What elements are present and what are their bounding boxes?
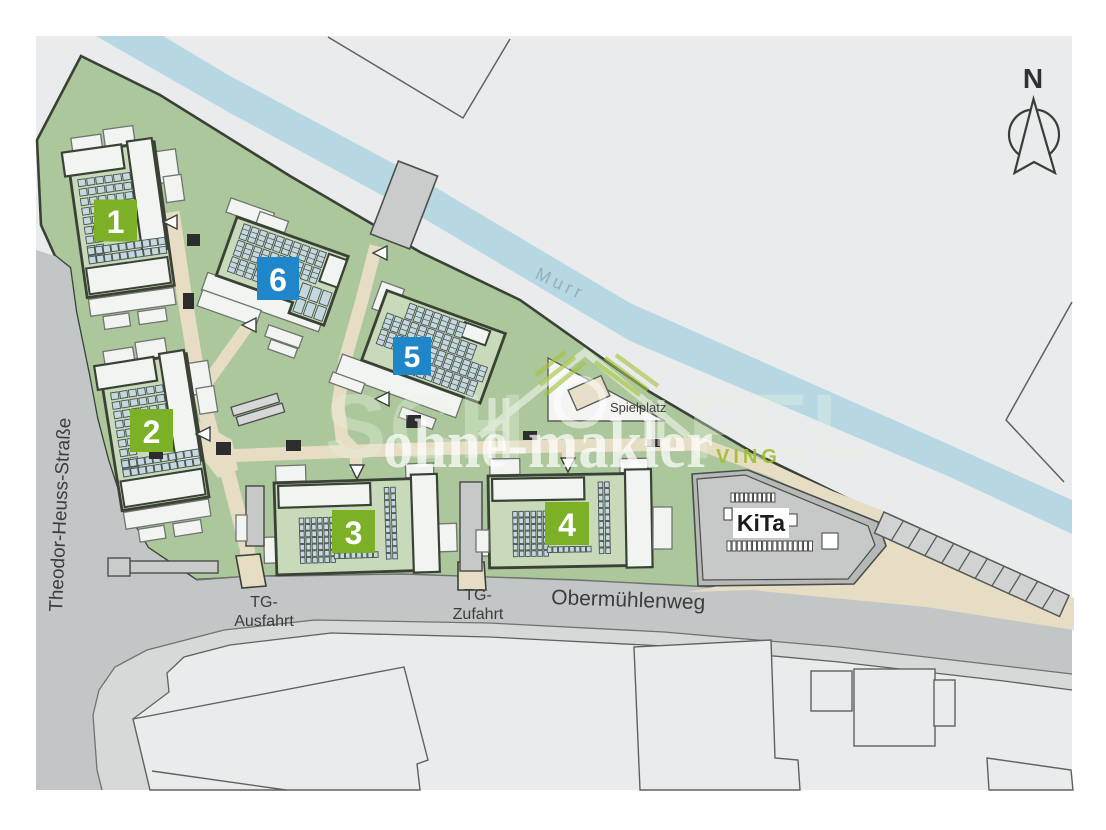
- svg-text:3: 3: [345, 515, 363, 551]
- svg-text:6: 6: [269, 262, 287, 298]
- svg-text:KiTa: KiTa: [737, 510, 785, 536]
- svg-text:TG-: TG-: [250, 594, 278, 611]
- svg-text:N: N: [1023, 63, 1043, 94]
- svg-text:ohne-makler: ohne-makler: [383, 406, 713, 483]
- svg-text:2: 2: [143, 414, 161, 450]
- svg-text:Ausfahrt: Ausfahrt: [234, 613, 294, 630]
- svg-text:1: 1: [107, 204, 125, 240]
- svg-text:5: 5: [404, 341, 421, 374]
- svg-text:Spielplatz: Spielplatz: [610, 400, 666, 415]
- svg-text:VING: VING: [716, 446, 781, 468]
- svg-text:Zufahrt: Zufahrt: [453, 606, 504, 623]
- svg-text:4: 4: [558, 507, 576, 543]
- svg-text:TG-: TG-: [464, 587, 492, 604]
